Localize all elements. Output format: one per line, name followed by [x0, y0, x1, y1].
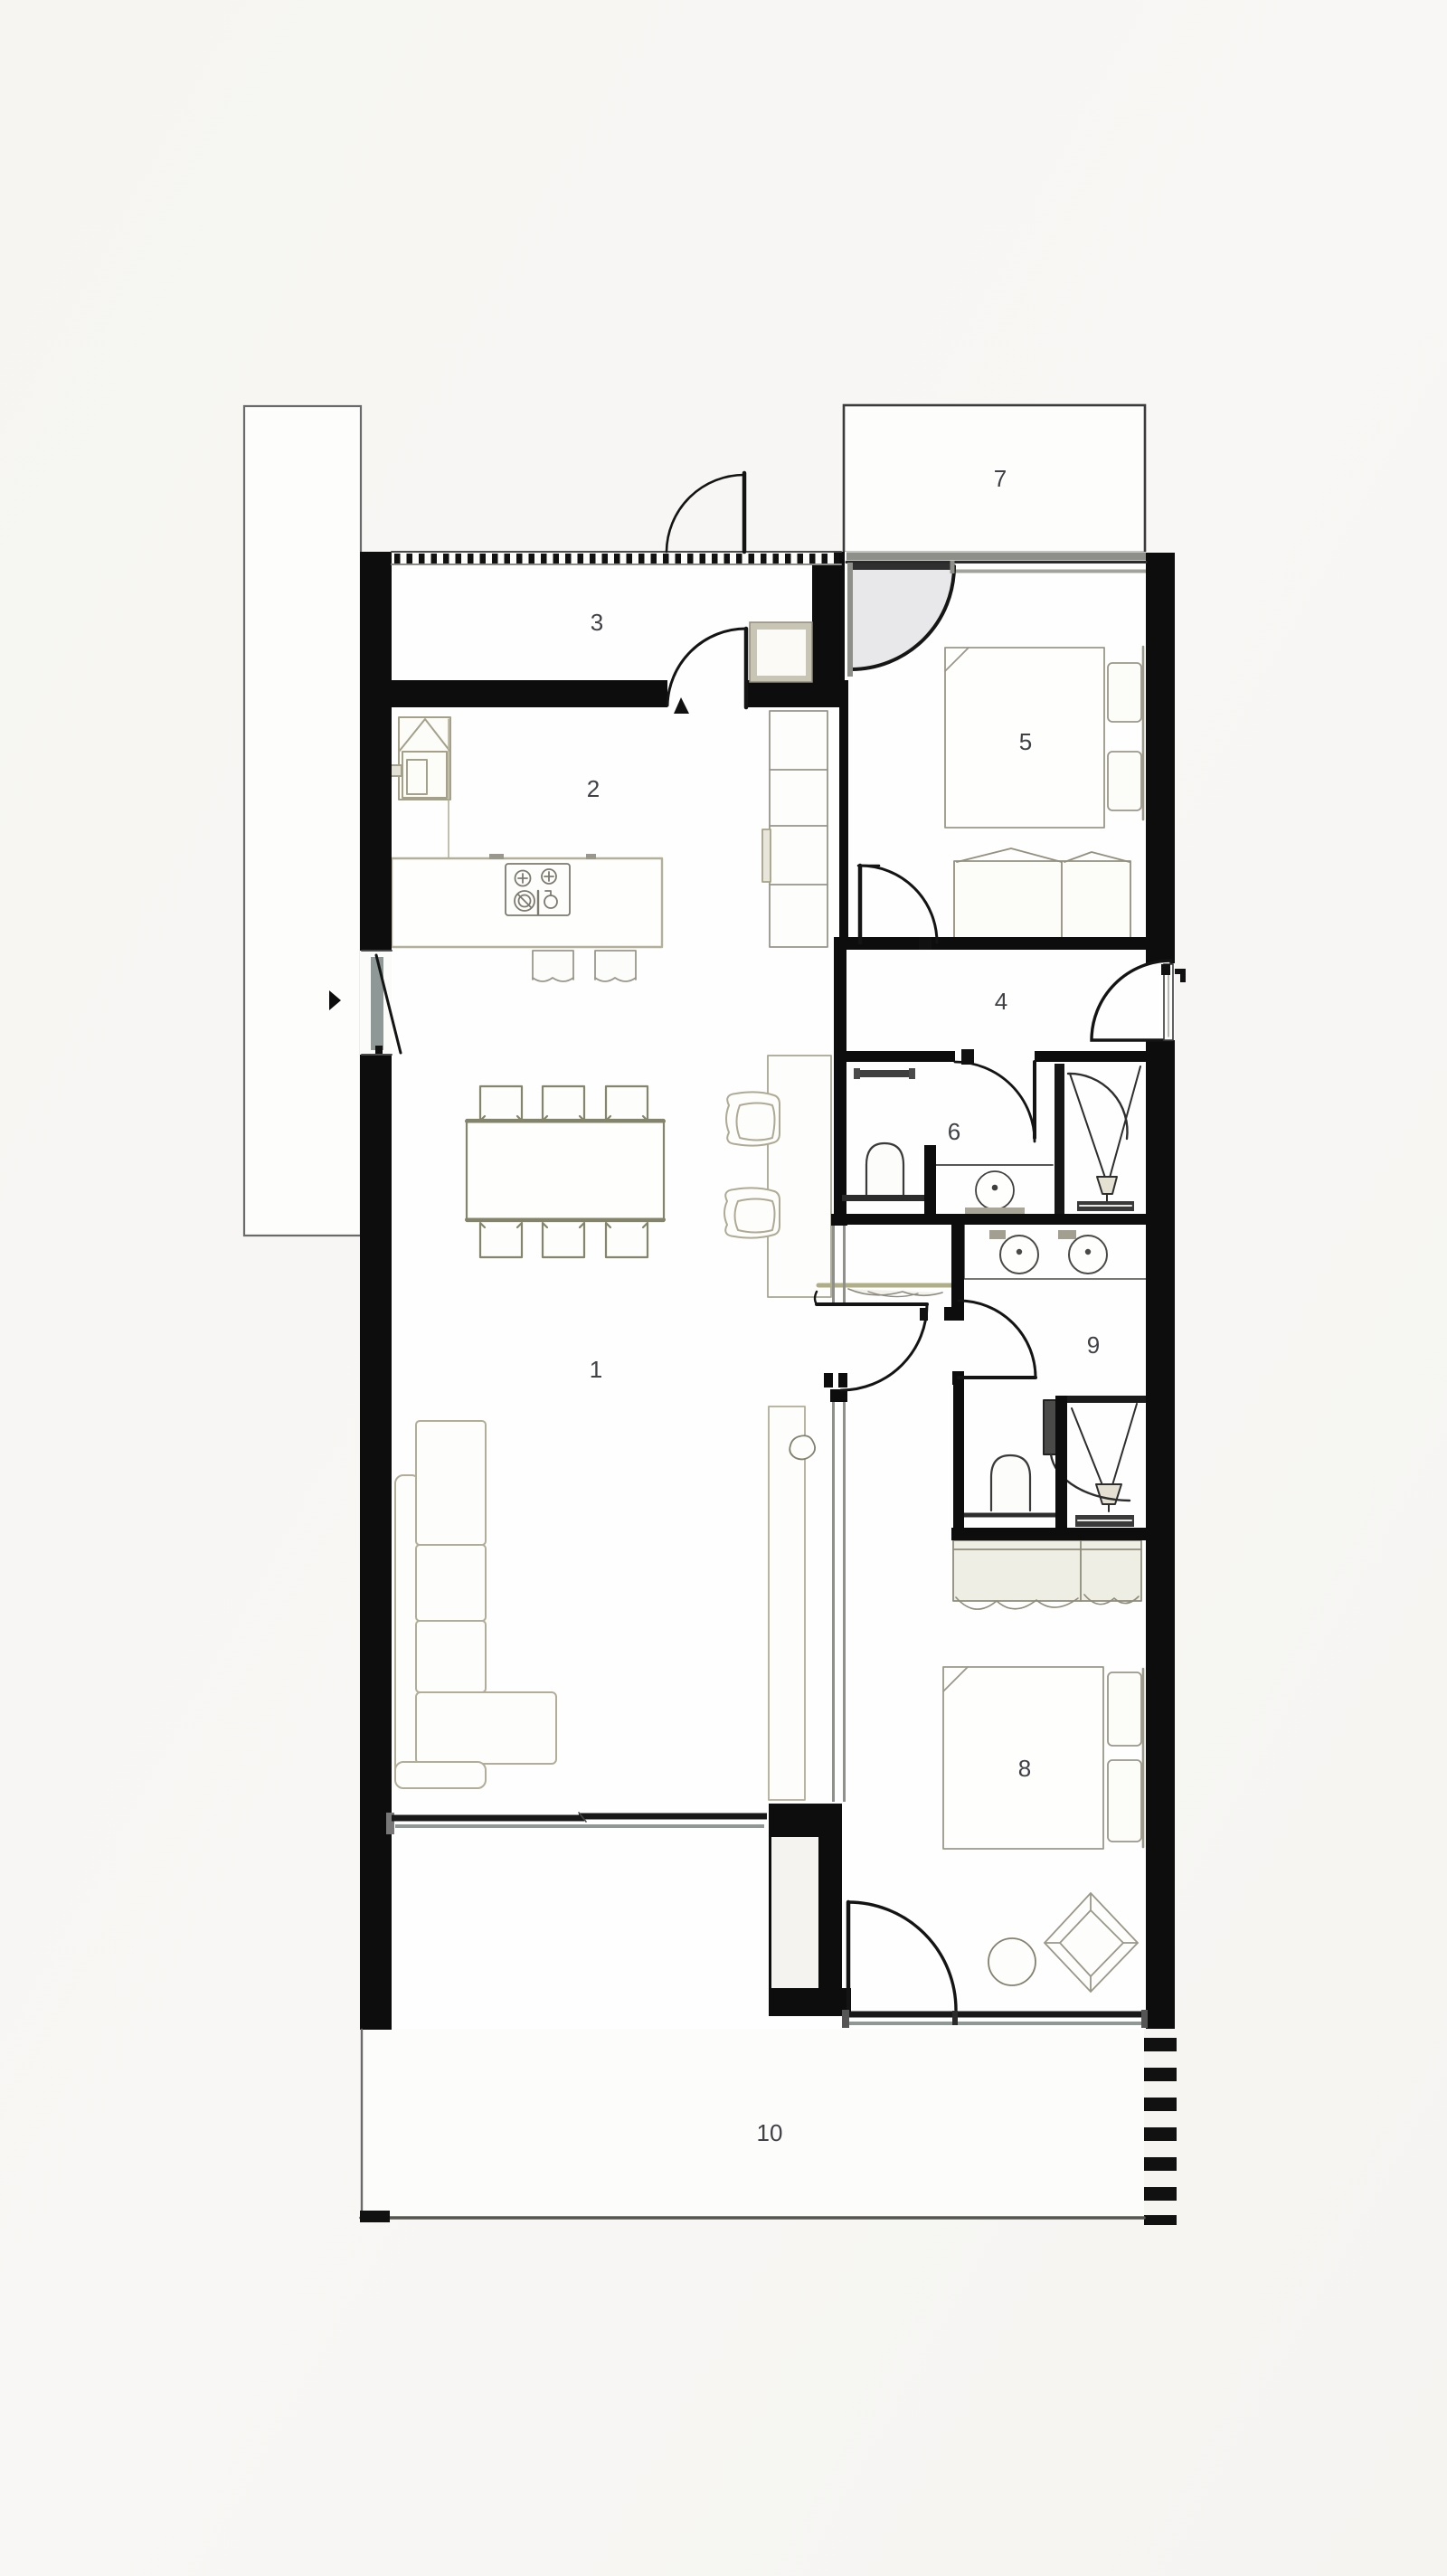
svg-text:7: 7	[994, 465, 1007, 492]
svg-text:1: 1	[590, 1356, 602, 1383]
svg-text:10: 10	[757, 2119, 783, 2146]
svg-text:5: 5	[1019, 728, 1032, 755]
svg-text:9: 9	[1087, 1331, 1100, 1359]
svg-text:6: 6	[948, 1118, 960, 1145]
svg-text:2: 2	[587, 775, 600, 802]
svg-text:4: 4	[995, 988, 1007, 1015]
svg-text:8: 8	[1018, 1755, 1031, 1782]
svg-text:3: 3	[591, 609, 603, 636]
